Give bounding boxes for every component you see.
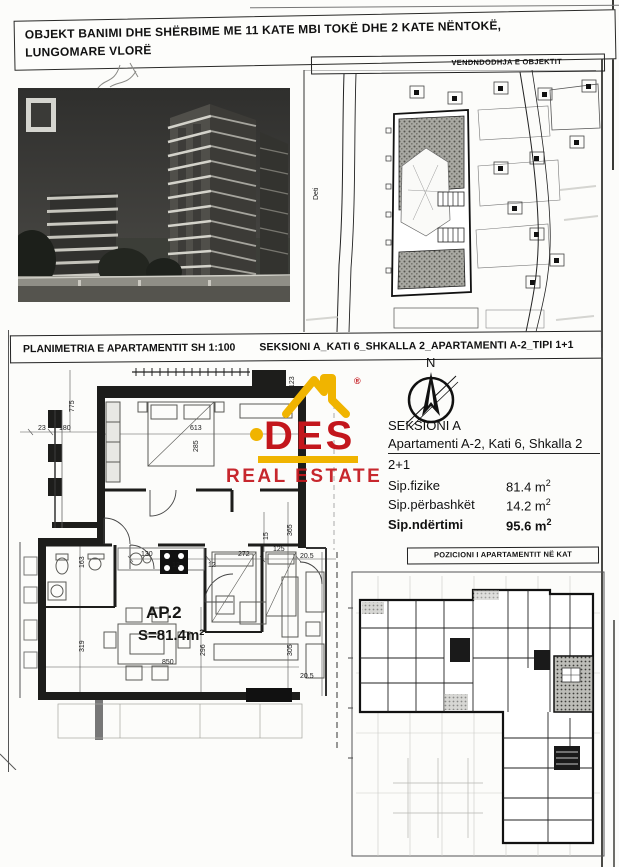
parking-grid: [393, 758, 483, 838]
dim-label: 20.5: [300, 553, 314, 560]
dim-label: 365: [287, 524, 294, 536]
metric-label: Sip.përbashkët: [388, 497, 506, 513]
registered-mark: ®: [354, 376, 361, 386]
metric-row: Sip.ndërtimi 95.6 m2: [388, 517, 600, 533]
scan-line-right-bottom: [613, 620, 615, 867]
apartment-subtitle: Apartamenti A-2, Kati 6, Shkalla 2: [388, 436, 600, 454]
metric-row: Sip.fizike 81.4 m2: [388, 478, 600, 494]
metric-value: 95.6 m2: [506, 517, 552, 533]
dim-label: 125: [273, 546, 285, 553]
unit-label: AP.2: [146, 603, 182, 622]
dim-label: 12: [208, 562, 216, 569]
north-label: N: [426, 355, 435, 370]
dim-label: 15: [263, 532, 270, 540]
floor-key-plan: [348, 568, 610, 864]
dim-label: 12: [172, 562, 180, 569]
dim-label: 272: [238, 551, 250, 558]
metric-label: Sip.ndërtimi: [388, 517, 506, 533]
lower-unit-ghost: [58, 704, 302, 738]
metric-row: Sip.përbashkët 14.2 m2: [388, 497, 600, 513]
apartment-floor-plan: 23 180 775 613 285 123 163 319 130 12 12…: [0, 352, 348, 770]
scan-line-top: [250, 5, 619, 9]
apartment-info: SEKSIONI A Apartamenti A-2, Kati 6, Shka…: [388, 418, 600, 533]
sea-label: Deti: [313, 187, 320, 200]
highlighted-apartment: [554, 656, 593, 712]
road-west: [337, 74, 356, 332]
site-boundary: [386, 110, 471, 296]
site-plan-map: Deti: [298, 70, 602, 332]
building-photo: [18, 88, 290, 302]
dim-label: 130: [141, 551, 153, 558]
site-plan-title: VENDNDODHJA E OBJEKTIT: [451, 57, 596, 68]
dim-label: 850: [162, 659, 174, 666]
dim-label: 775: [69, 400, 76, 412]
dim-label: 613: [190, 425, 202, 432]
dim-label: 163: [79, 556, 86, 568]
apartment-type: 2+1: [388, 457, 600, 472]
position-plan-title-box: POZICIONI I APARTAMENTIT NË KAT: [407, 546, 599, 564]
metric-value: 14.2 m2: [506, 497, 551, 513]
dim-label: 319: [79, 640, 86, 652]
metric-label: Sip.fizike: [388, 478, 506, 494]
dim-label: 285: [193, 440, 200, 452]
position-plan-title: POZICIONI I APARTAMENTIT NË KAT: [434, 550, 572, 560]
balcony-railing: [132, 368, 250, 376]
dim-label: 20.5: [300, 673, 314, 680]
dim-label: 123: [289, 376, 296, 388]
section-label: SEKSIONI A: [388, 418, 600, 433]
scanned-plan-page: OBJEKT BANIMI DHE SHËRBIME ME 11 KATE MB…: [0, 0, 619, 867]
dim-label: 180: [59, 425, 71, 432]
unit-area-label: S=81.4m²: [138, 627, 204, 644]
photo-right-tower: [260, 132, 288, 276]
dim-label: 296: [200, 644, 207, 656]
photo-main-tower: [168, 104, 256, 286]
dim-label: 305: [287, 644, 294, 656]
metric-value: 81.4 m2: [506, 478, 551, 494]
building-footprint-south: [398, 249, 465, 289]
dim-label: 23: [38, 425, 46, 432]
